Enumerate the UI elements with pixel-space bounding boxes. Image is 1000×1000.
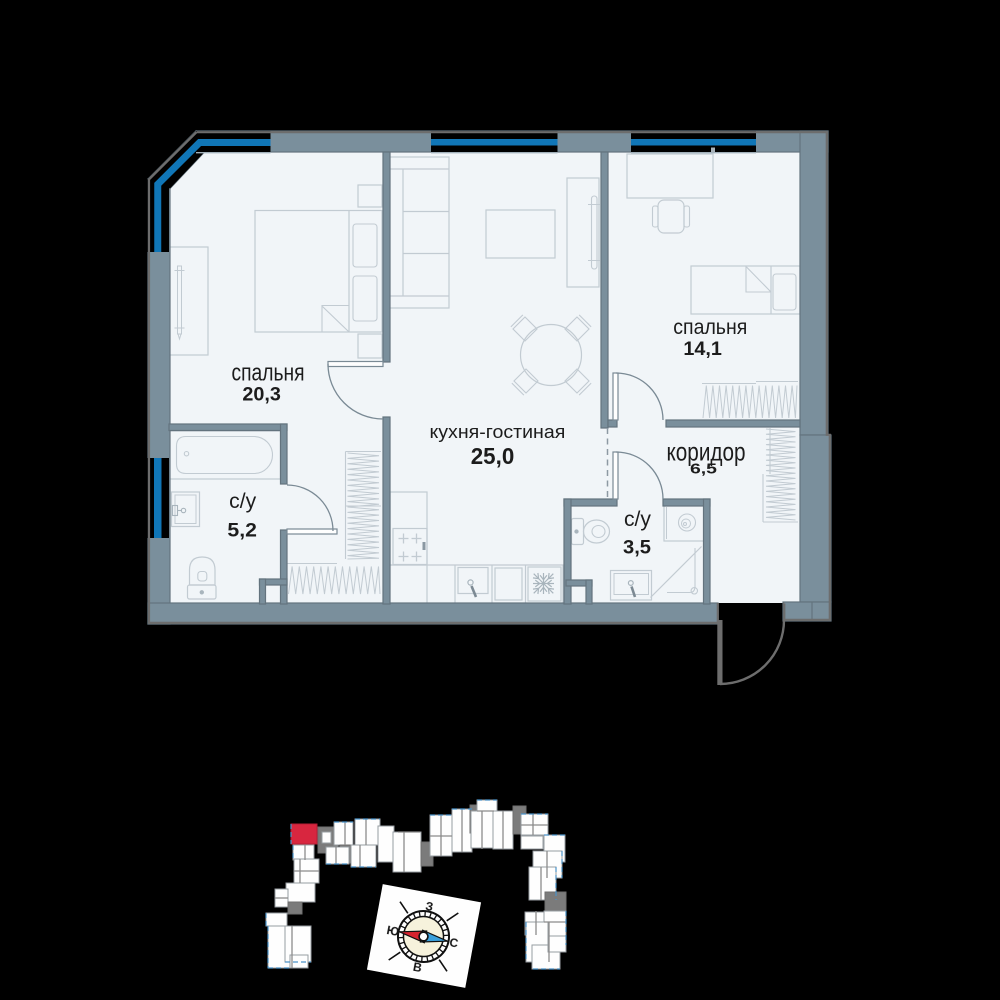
- svg-text:5,2: 5,2: [227, 520, 257, 542]
- svg-text:спальня: спальня: [232, 360, 305, 387]
- svg-text:25,0: 25,0: [471, 443, 515, 469]
- svg-text:кухня-гостиная: кухня-гостиная: [430, 421, 566, 442]
- svg-text:20,3: 20,3: [242, 385, 281, 406]
- svg-text:3,5: 3,5: [623, 537, 651, 559]
- svg-text:с/у: с/у: [229, 490, 256, 513]
- svg-text:Ю: Ю: [386, 923, 401, 939]
- svg-text:спальня: спальня: [673, 316, 747, 339]
- svg-text:6,5: 6,5: [690, 461, 717, 477]
- svg-text:с/у: с/у: [624, 508, 651, 531]
- svg-text:14,1: 14,1: [683, 339, 722, 360]
